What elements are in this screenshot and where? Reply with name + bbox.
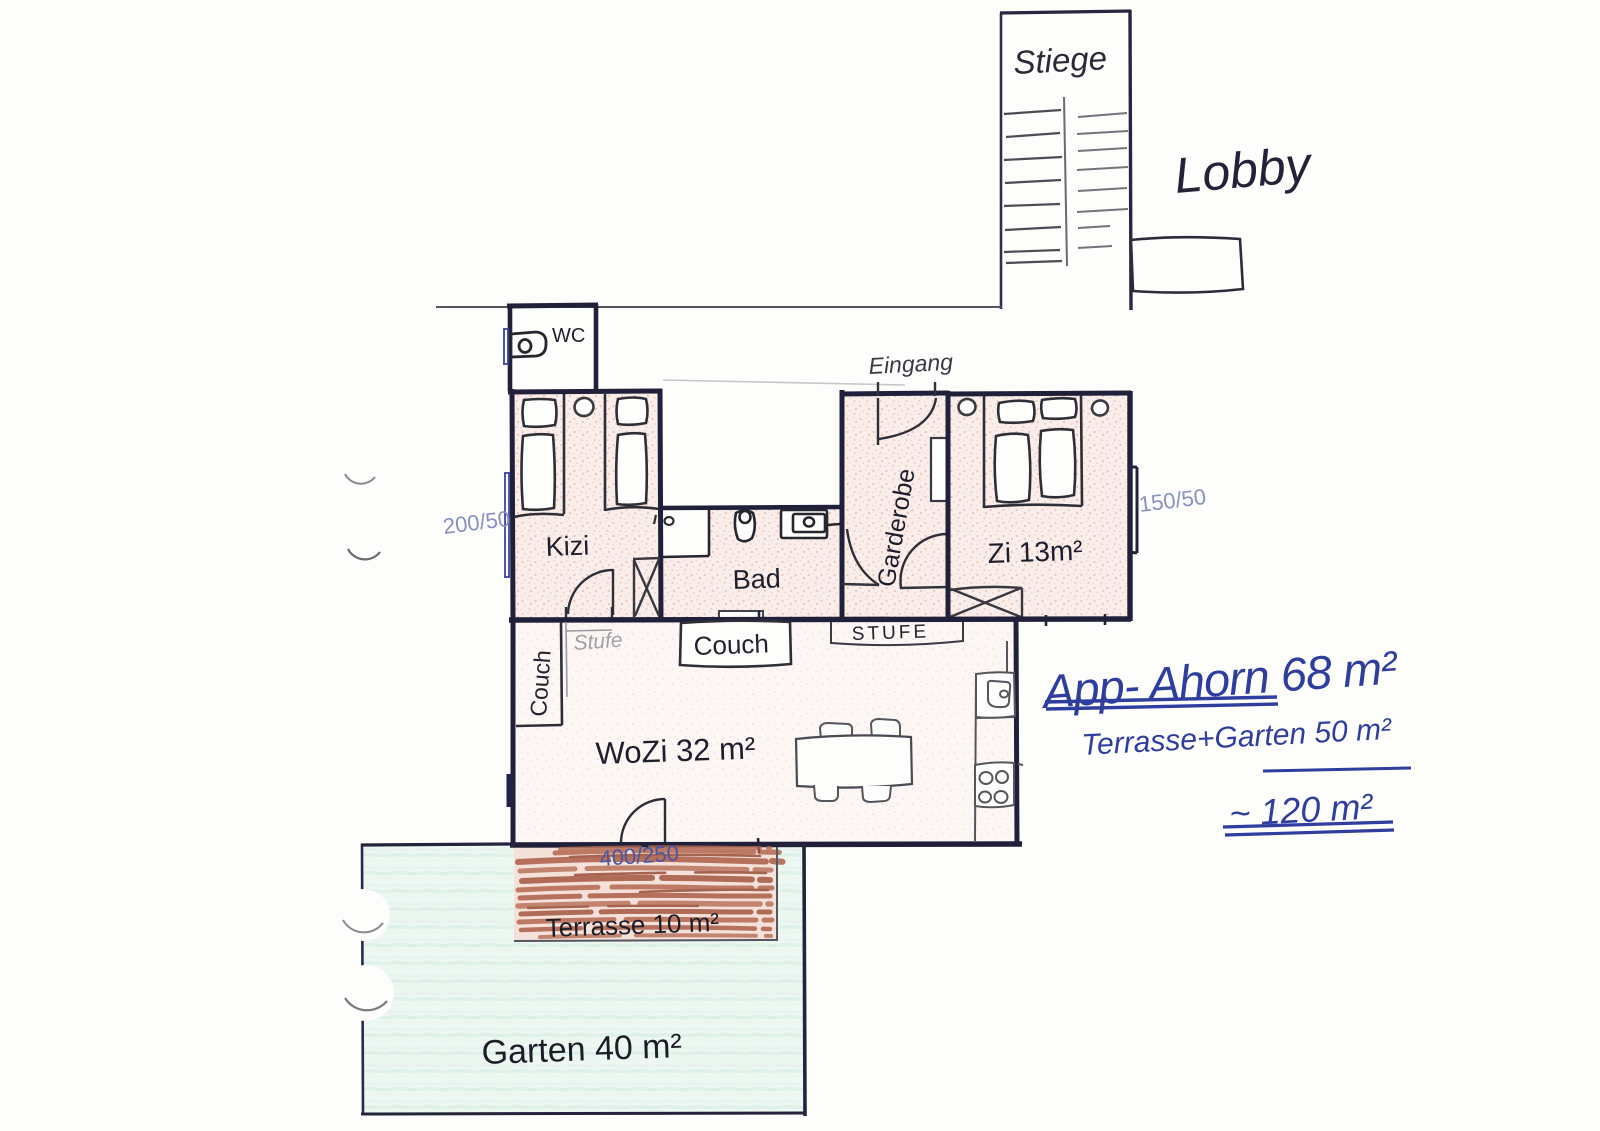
svg-text:Couch: Couch: [525, 649, 556, 717]
svg-text:Garten 40 m²: Garten 40 m²: [481, 1027, 683, 1072]
svg-text:Terrasse 10 m²: Terrasse 10 m²: [545, 907, 720, 943]
svg-text:WC: WC: [552, 325, 585, 347]
svg-text:Zi 13m²: Zi 13m²: [987, 535, 1083, 569]
svg-text:Bad: Bad: [732, 563, 781, 595]
svg-text:Stufe: Stufe: [573, 629, 624, 655]
svg-text:Kizi: Kizi: [545, 530, 590, 562]
svg-text:Eingang: Eingang: [868, 349, 954, 379]
svg-text:Stiege: Stiege: [1012, 39, 1107, 81]
svg-text:STUFE: STUFE: [851, 621, 929, 645]
svg-text:Couch: Couch: [693, 628, 769, 661]
svg-text:WoZi 32 m²: WoZi 32 m²: [595, 730, 756, 771]
